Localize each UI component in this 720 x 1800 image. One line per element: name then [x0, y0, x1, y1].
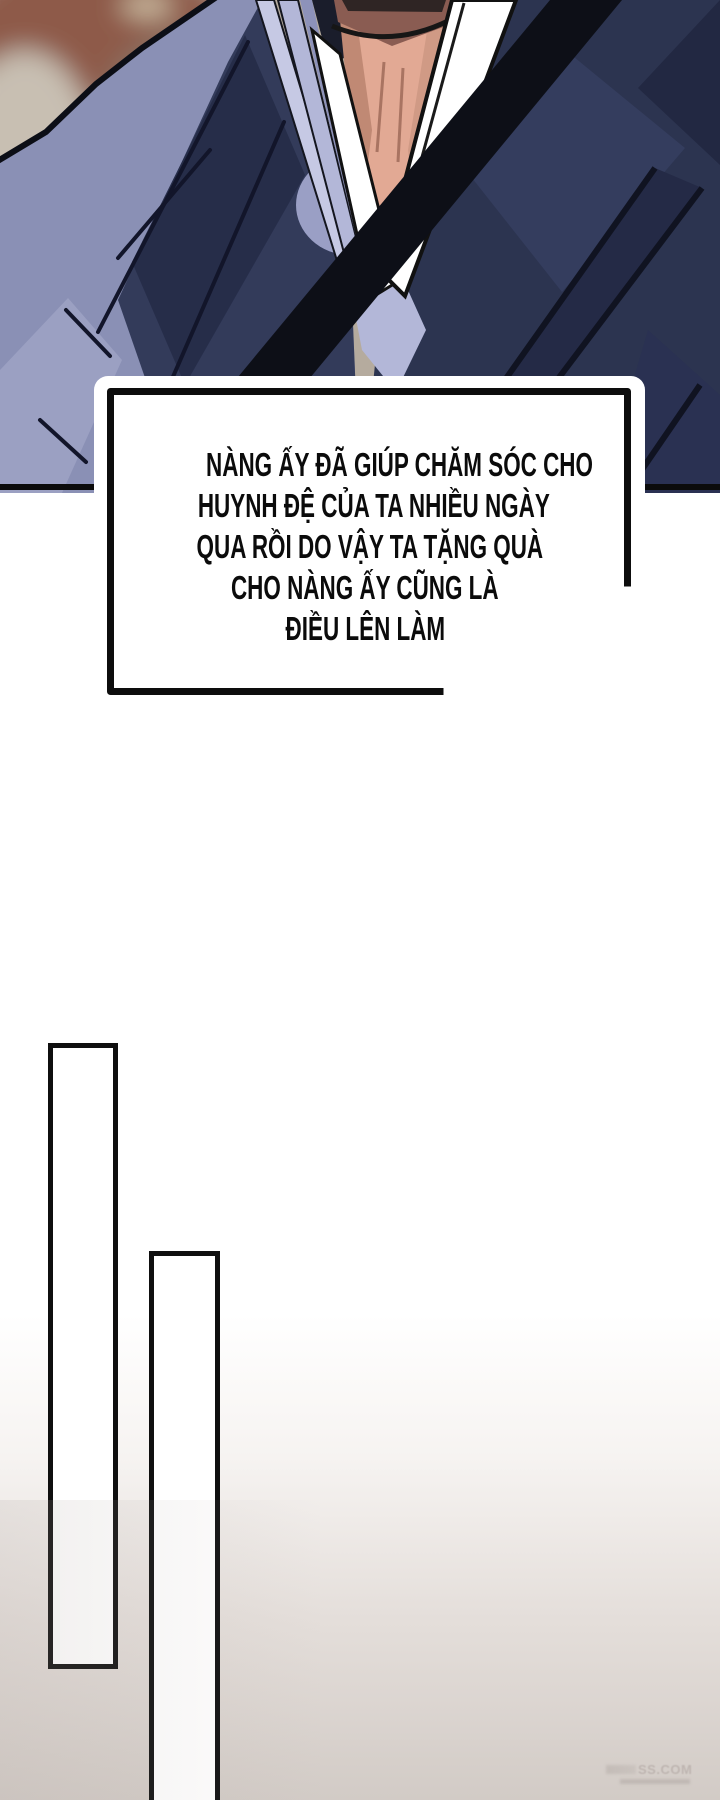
comic-page: NÀNG ẤY ĐÃ GIÚP CHĂM SÓC CHO HUYNH ĐỆ CỦ… — [0, 0, 720, 1800]
watermark-text: SS.COM — [638, 1762, 692, 1777]
speech-bubble-line: NÀNG ẤY ĐÃ GIÚP CHĂM SÓC CHO — [115, 444, 615, 485]
speech-bubble-line: CHO NÀNG ẤY CŨNG LÀ — [115, 567, 615, 608]
watermark: SS.COM — [606, 1762, 706, 1777]
speech-bubble-line: HUYNH ĐỆ CỦA TA NHIỀU NGÀY — [115, 485, 615, 526]
watermark-blur-fragment — [606, 1765, 636, 1774]
watermark-subline — [620, 1779, 690, 1784]
speech-bubble-line: QUA RỒI DO VẬY TA TẶNG QUÀ — [115, 526, 615, 567]
speech-bubble-line: ĐIỀU LÊN LÀM — [115, 608, 615, 649]
panel-bar-right — [149, 1251, 220, 1800]
panel-bar-left — [48, 1043, 118, 1669]
speech-bubble: NÀNG ẤY ĐÃ GIÚP CHĂM SÓC CHO HUYNH ĐỆ CỦ… — [115, 444, 615, 649]
